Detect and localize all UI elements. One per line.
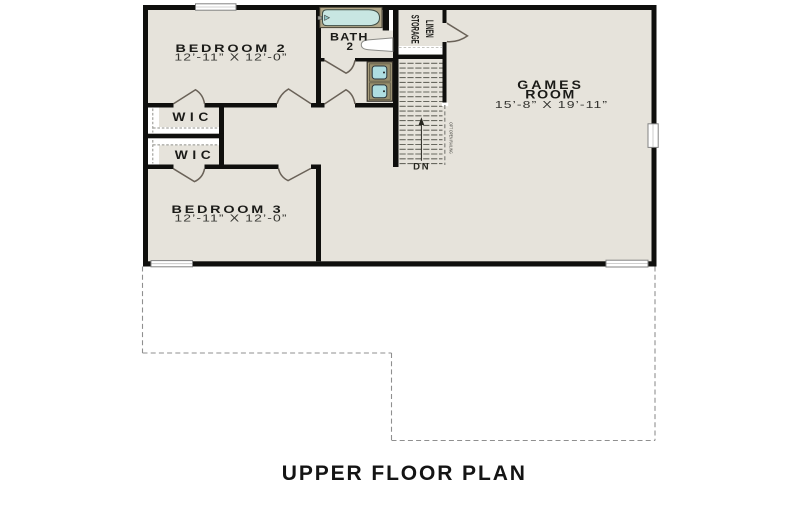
- svg-text:12’-11” X 12’-0”: 12’-11” X 12’-0”: [174, 51, 287, 63]
- svg-text:DN: DN: [413, 162, 430, 173]
- svg-text:WIC: WIC: [175, 149, 215, 162]
- svg-text:STORAGE: STORAGE: [409, 15, 421, 44]
- svg-text:UPPER FLOOR PLAN: UPPER FLOOR PLAN: [282, 462, 527, 485]
- svg-text:15’-8” X 19’-11”: 15’-8” X 19’-11”: [495, 99, 608, 111]
- svg-text:WIC: WIC: [172, 111, 212, 124]
- svg-text:12’-11” X 12’-0”: 12’-11” X 12’-0”: [174, 212, 287, 224]
- svg-text:LINEN: LINEN: [423, 20, 435, 38]
- svg-text:2: 2: [347, 41, 353, 53]
- svg-text:OPT OPEN RAILING: OPT OPEN RAILING: [448, 122, 452, 154]
